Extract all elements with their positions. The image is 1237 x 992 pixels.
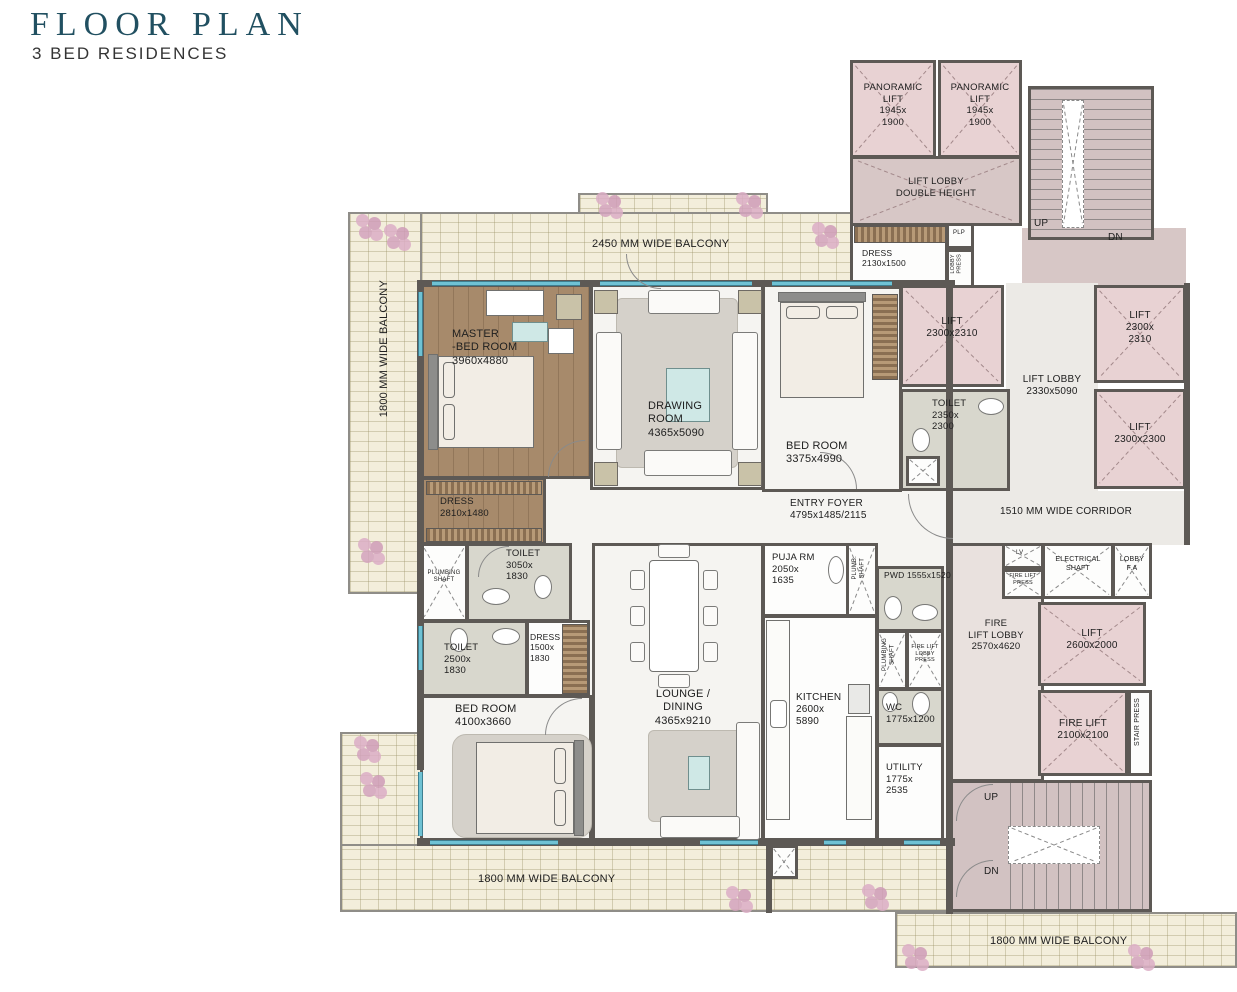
- dress-1-label: DRESS 2810x1480: [440, 496, 489, 519]
- electrical-shaft-label: ELECTRICAL SHAFT: [1048, 556, 1108, 573]
- lounge-label: LOUNGE / DINING4365x9210: [628, 688, 738, 728]
- sofa-icon: [660, 816, 740, 838]
- stove-icon: [848, 684, 870, 714]
- stair-landing-icon: [1008, 826, 1100, 864]
- fire-lift-lobby-press-label: FIRE LIFT LOBBY PRESS: [908, 644, 942, 664]
- plp-label: PLP: [953, 230, 965, 237]
- wardrobe-icon: [562, 624, 588, 694]
- fire-lift-lobby-label: FIRE LIFT LOBBY2570x4620: [952, 618, 1040, 653]
- bedroom-3-label: BED ROOM4100x3660: [455, 703, 517, 730]
- balcony-bottom: [340, 844, 952, 912]
- pillow-icon: [826, 306, 858, 319]
- chair-icon: [658, 544, 690, 558]
- idol-stand-icon: [828, 556, 844, 584]
- window-icon: [418, 292, 423, 356]
- lift-lobby-dh-label: LIFT LOBBY DOUBLE HEIGHT: [868, 176, 1004, 199]
- shaft-icon: [906, 456, 940, 486]
- balcony-bottom-label: 1800 MM WIDE BALCONY: [478, 873, 615, 886]
- planter-icon: [738, 290, 762, 314]
- bedroom-2-label: BED ROOM3375x4990: [786, 440, 848, 467]
- sofa-icon: [596, 332, 622, 450]
- pillow-icon: [786, 306, 820, 319]
- entry-foyer-label: ENTRY FOYER4795x1485/2115: [790, 498, 867, 522]
- armchair-icon: [556, 294, 582, 320]
- window-icon: [904, 840, 940, 845]
- flower-icon: [736, 192, 749, 205]
- flower-icon: [726, 886, 739, 899]
- plumb-shaft-b-label: PLUMB. SHAFT: [852, 556, 867, 580]
- lobby-press-label: LOBBY PRESS: [950, 254, 963, 274]
- panoramic-lift-2-label: PANORAMIC LIFT1945x 1900: [944, 82, 1016, 128]
- sink-icon: [912, 604, 938, 621]
- window-icon: [600, 281, 752, 286]
- sofa-icon: [732, 332, 758, 450]
- stair-landing-icon: [1062, 100, 1084, 228]
- toilet-2-label: TOILET2500x 1830: [444, 642, 478, 677]
- chair-icon: [703, 642, 718, 662]
- balcony-bottom-right-label: 1800 MM WIDE BALCONY: [990, 935, 1127, 948]
- bed-icon: [778, 292, 866, 302]
- puja-label: PUJA RM2050x 1635: [772, 552, 815, 587]
- toilet-icon: [884, 596, 902, 620]
- chair-icon: [703, 570, 718, 590]
- utility-label: UTILITY1775x 2535: [886, 762, 923, 797]
- page-subtitle: 3 BED RESIDENCES: [32, 44, 228, 64]
- lobby-fa-label: LOBBY F.A: [1116, 556, 1148, 573]
- window-icon: [418, 626, 423, 670]
- lift-a-label: LIFT2300x2310: [912, 316, 992, 340]
- chair-icon: [630, 642, 645, 662]
- pwd-label: PWD 1555x1520: [884, 570, 951, 580]
- master-bedroom-label: MASTER -BED ROOM3960x4880: [452, 328, 517, 368]
- flower-icon: [902, 944, 915, 957]
- balcony-bottom-left-corner: [340, 732, 425, 848]
- flower-icon: [354, 736, 367, 749]
- corridor-label: 1510 MM WIDE CORRIDOR: [1000, 506, 1132, 518]
- kitchen-sink-icon: [770, 700, 787, 728]
- kitchen-label: KITCHEN2600x 5890: [796, 692, 841, 729]
- kitchen-counter-icon: [846, 716, 872, 820]
- stairs-top: [1028, 86, 1154, 240]
- planter-icon: [594, 462, 618, 486]
- sofa-icon: [648, 290, 720, 314]
- wardrobe-icon: [872, 294, 898, 380]
- dress-top-label: DRESS2130x1500: [862, 248, 906, 269]
- flower-icon: [360, 772, 373, 785]
- wardrobe-icon: [426, 481, 542, 495]
- window-icon: [700, 840, 758, 845]
- pillow-icon: [554, 790, 566, 826]
- wardrobe-icon: [426, 528, 542, 542]
- pillow-icon: [443, 404, 455, 440]
- window-icon: [824, 840, 846, 845]
- side-table-icon: [548, 328, 574, 354]
- closet-icon: [486, 290, 544, 316]
- balcony-top-label: 2450 MM WIDE BALCONY: [592, 238, 729, 251]
- flower-icon: [356, 214, 369, 227]
- panoramic-lift-1-label: PANORAMIC LIFT1945x 1900: [856, 82, 930, 128]
- planter-icon: [738, 462, 762, 486]
- chair-icon: [630, 570, 645, 590]
- flower-icon: [358, 538, 371, 551]
- toilet-icon: [912, 428, 930, 452]
- toilet-1-label: TOILET3050x 1830: [506, 548, 540, 583]
- bed-icon: [574, 740, 584, 836]
- wall: [946, 280, 953, 914]
- fire-lift-press-label: FIRE LIFT PRESS: [1005, 573, 1041, 586]
- flower-icon: [1128, 944, 1141, 957]
- bed-icon: [428, 354, 438, 450]
- lv-label: LV: [1016, 550, 1023, 557]
- window-icon: [432, 281, 580, 286]
- lift-b-label: LIFT2300x 2310: [1106, 310, 1174, 347]
- window-icon: [772, 281, 892, 286]
- stair-press-label: STAIR PRESS: [1134, 698, 1143, 746]
- drawing-room-label: DRAWING ROOM4365x5090: [648, 400, 704, 440]
- duct-icon: [770, 845, 798, 879]
- stairs-bottom-up-label: UP: [984, 792, 998, 804]
- plumbing-shaft-c-label: PLUMBING SHAFT: [882, 638, 897, 671]
- chair-icon: [630, 606, 645, 626]
- toilet-3-label: TOILET2350x 2300: [932, 398, 966, 433]
- stairs-top-up-label: UP: [1034, 218, 1048, 230]
- dresser-icon: [512, 322, 548, 342]
- window-icon: [430, 840, 558, 845]
- dining-table-icon: [649, 560, 699, 672]
- room-plumb-shaft-b: [846, 543, 878, 617]
- stairs-top-dn-label: DN: [1108, 232, 1123, 244]
- lift-d-label: LIFT2600x2000: [1052, 628, 1132, 652]
- wc-label: WC 1775x1200: [886, 702, 935, 725]
- stairs-bottom-dn-label: DN: [984, 866, 999, 878]
- balcony-left-label: 1800 MM WIDE BALCONY: [378, 280, 391, 417]
- sink-icon: [978, 398, 1004, 415]
- lift-c-label: LIFT2300x2300: [1100, 422, 1180, 446]
- planter-icon: [594, 290, 618, 314]
- wall: [766, 843, 772, 913]
- lift-lobby-label: LIFT LOBBY2330x5090: [1012, 374, 1092, 398]
- flower-icon: [596, 192, 609, 205]
- dress-2-label: DRESS1500x 1830: [530, 632, 560, 663]
- page-title: FLOOR PLAN: [30, 6, 309, 44]
- sink-icon: [492, 628, 520, 645]
- flower-icon: [812, 222, 825, 235]
- coffee-table-icon: [688, 756, 710, 790]
- sofa-icon: [644, 450, 732, 476]
- flower-icon: [384, 224, 397, 237]
- wall: [1184, 283, 1190, 545]
- pillow-icon: [554, 748, 566, 784]
- window-icon: [418, 772, 423, 836]
- floor-plan: FLOOR PLAN 3 BED RESIDENCES 2450 MM WIDE…: [0, 0, 1237, 992]
- chair-icon: [658, 674, 690, 688]
- plumbing-shaft-a-label: PLUMBING SHAFT: [424, 570, 464, 585]
- wardrobe-icon: [854, 226, 946, 243]
- fire-lift-label: FIRE LIFT2100x2100: [1044, 718, 1122, 742]
- sink-icon: [482, 588, 510, 605]
- chair-icon: [703, 606, 718, 626]
- flower-icon: [862, 884, 875, 897]
